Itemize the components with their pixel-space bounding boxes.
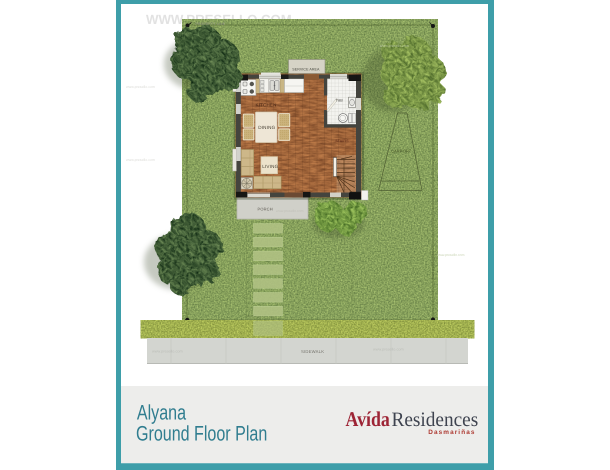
svg-text:www.presello.com: www.presello.com [126,85,155,89]
svg-text:SIDEWALK: SIDEWALK [301,350,324,355]
svg-text:www.presello.com: www.presello.com [373,347,404,351]
svg-text:www.presello.com: www.presello.com [380,44,409,48]
svg-text:Avída: Avída [346,407,391,431]
svg-text:KITCHEN: KITCHEN [256,103,277,108]
svg-text:www.presello.com: www.presello.com [437,253,465,257]
svg-text:PROPERTY LINE: PROPERTY LINE [431,252,435,280]
svg-text:STAIRS: STAIRS [335,139,348,143]
svg-text:www.presello.com: www.presello.com [126,158,155,162]
svg-text:DINING: DINING [258,125,275,130]
svg-text:www.presello.com: www.presello.com [276,209,304,213]
svg-text:PORCH: PORCH [258,207,273,211]
svg-text:CARPORT: CARPORT [391,149,411,153]
svg-text:T&B: T&B [336,99,343,103]
svg-text:Ground Floor Plan: Ground Floor Plan [136,423,267,446]
svg-text:Residences: Residences [392,409,479,431]
svg-text:LIVING: LIVING [262,164,278,169]
svg-text:www.presello.com: www.presello.com [152,349,183,353]
svg-text:Dasmariñas: Dasmariñas [428,429,475,436]
svg-text:SERVICE AREA: SERVICE AREA [292,67,319,71]
svg-text:PROPERTY LINE: PROPERTY LINE [196,22,226,26]
svg-text:Alyana: Alyana [137,402,186,425]
